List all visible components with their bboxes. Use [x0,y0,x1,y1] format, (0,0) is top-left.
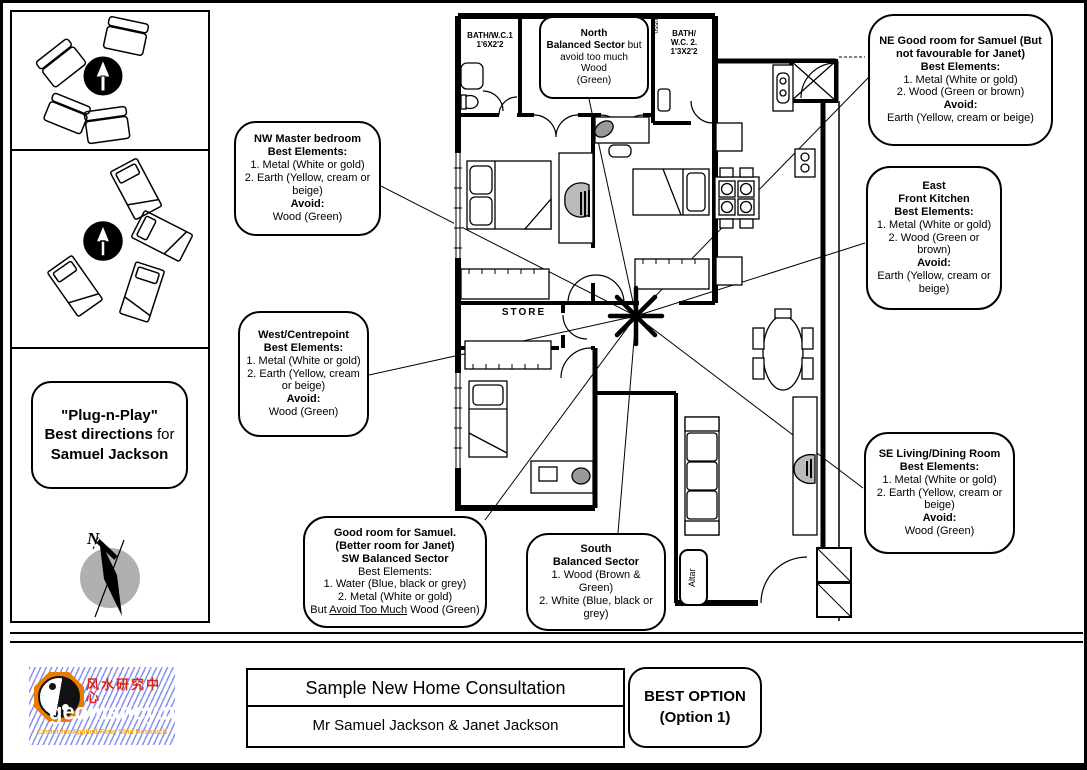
best-option-line2: (Option 1) [630,708,760,728]
consultation-sheet: "Plug-n-Play" Best directions for Samuel… [0,0,1087,770]
sw-but-underline: Avoid Too Much [329,604,407,616]
se-title: SE Living/Dining Room [871,448,1008,461]
plug-line2-rest: for [153,426,175,443]
corridor-appliance [795,149,815,177]
logo-tagline: Center for Applied Feng Shui Research [33,729,171,736]
north-line2-bold: Balanced Sector [546,40,624,51]
west-item2: 2. Earth (Yellow, cream or beige) [245,368,362,394]
bedroom3-wardrobe [465,341,551,369]
master-bed [467,161,551,229]
bedroom3-bed [469,381,507,457]
separator-line [10,632,1083,634]
callout-south: South Balanced Sector 1. Wood (Brown & G… [526,533,666,631]
plug-line1: "Plug-n-Play" [33,406,186,426]
sw-title3: SW Balanced Sector [310,553,480,566]
consultation-title: Sample New Home Consultation [248,670,623,707]
north-line2-rest: but [625,40,642,51]
north-line2: Balanced Sector but [546,40,642,52]
door-dimension-label: 0550 [651,19,658,33]
ne-item2: 2. Wood (Green or brown) [875,86,1046,99]
east-item2: 2. Wood (Green or brown) [873,232,995,258]
bedroom3-desk [531,461,593,493]
south-title: South [533,543,659,556]
se-best-label: Best Elements: [871,461,1008,474]
shaft [791,61,836,101]
ne-item1: 1. Metal (White or gold) [875,74,1046,87]
sw-best-label: Best Elements: [310,566,480,579]
bedroom2-bed [633,169,709,215]
south-item2: 2. White (Blue, black or grey) [533,595,659,621]
east-subtitle: Front Kitchen [873,193,995,206]
plug-line2: Best directions for [33,425,186,445]
west-item1: 1. Metal (White or gold) [245,355,362,368]
north-line4: (Green) [546,75,642,87]
nw-item1: 1. Metal (White or gold) [241,159,374,172]
west-avoid: Wood (Green) [245,406,362,419]
west-best-label: Best Elements: [245,342,362,355]
bath2-label: BATH/W.C. 2.1'3X2'2 [656,29,712,57]
plug-line2-bold: Best directions [44,426,152,443]
east-avoid: Earth (Yellow, cream or beige) [873,270,995,296]
title-box: Sample New Home Consultation Mr Samuel J… [246,668,625,748]
sw-item2: 2. Metal (White or gold) [310,591,480,604]
geomancy-logo: 风水研究中心 geomancy.net Center for Applied F… [29,667,175,745]
kitchen-table-set [715,168,759,228]
ne-title: NE Good room for Samuel (But not favoura… [875,35,1046,61]
bath1-fixtures [461,63,483,109]
north-title: North [546,28,642,40]
sw-item1: 1. Water (Blue, black or grey) [310,578,480,591]
callout-west: West/Centrepoint Best Elements: 1. Metal… [238,311,369,437]
logo-domain-text: geomancy.net [49,700,175,723]
south-subtitle: Balanced Sector [533,556,659,569]
ne-avoid-label: Avoid: [875,99,1046,112]
nw-item2: 2. Earth (Yellow, cream or beige) [241,172,374,198]
se-avoid: Wood (Green) [871,525,1008,538]
ne-avoid: Earth (Yellow, cream or beige) [875,112,1046,125]
footer-strip: 风水研究中心 geomancy.net Center for Applied F… [10,641,1083,761]
se-item1: 1. Metal (White or gold) [871,474,1008,487]
sw-title2: (Better room for Janet) [310,540,480,553]
bath2-fixtures [658,89,670,111]
north-line3: avoid too much Wood [546,52,642,76]
altar-label: Altar [679,549,708,606]
sw-but-suffix: Wood (Green) [407,604,480,616]
sofa [685,417,719,535]
callout-ne: NE Good room for Samuel (But not favoura… [868,14,1053,146]
plug-line3: Samuel Jackson [33,445,186,465]
bath1-label: BATH/W.C.11'6X2'2 [461,31,519,49]
sw-but-line: But Avoid Too Much Wood (Green) [310,604,480,617]
consultation-clients: Mr Samuel Jackson & Janet Jackson [248,707,623,744]
se-avoid-label: Avoid: [871,512,1008,525]
east-avoid-label: Avoid: [873,257,995,270]
sw-but-prefix: But [310,604,329,616]
bedroom2-wardrobe [635,259,709,289]
callout-east: East Front Kitchen Best Elements: 1. Met… [866,166,1002,310]
dining-table [753,309,813,390]
centrepoint-star [610,288,662,344]
se-item2: 2. Earth (Yellow, cream or beige) [871,487,1008,513]
best-option-bubble: BEST OPTION (Option 1) [628,667,762,748]
callout-north: North Balanced Sector but avoid too much… [539,16,649,99]
nw-title: NW Master bedroom [241,133,374,146]
callout-sw: Good room for Samuel. (Better room for J… [303,516,487,628]
best-option-line1: BEST OPTION [630,687,760,707]
nw-best-label: Best Elements: [241,146,374,159]
master-wardrobe [461,269,549,299]
compass-north-letter: N [87,530,99,547]
nw-avoid: Wood (Green) [241,211,374,224]
nw-avoid-label: Avoid: [241,198,374,211]
callout-nw: NW Master bedroom Best Elements: 1. Meta… [234,121,381,236]
left-panel-frame [10,10,210,623]
wall-appliance [773,65,793,111]
master-tv-console [559,153,593,243]
west-avoid-label: Avoid: [245,393,362,406]
ne-best-label: Best Elements: [875,61,1046,74]
south-item1: 1. Wood (Brown & Green) [533,569,659,595]
sw-title1: Good room for Samuel. [310,527,480,540]
plug-n-play-bubble: "Plug-n-Play" Best directions for Samuel… [31,381,188,489]
east-title: East [873,180,995,193]
store-label: STORE [489,308,559,318]
living-tv-console [793,397,817,535]
callout-se: SE Living/Dining Room Best Elements: 1. … [864,432,1015,554]
west-title: West/Centrepoint [245,329,362,342]
east-item1: 1. Metal (White or gold) [873,219,995,232]
east-best-label: Best Elements: [873,206,995,219]
bay-windows [817,548,851,617]
